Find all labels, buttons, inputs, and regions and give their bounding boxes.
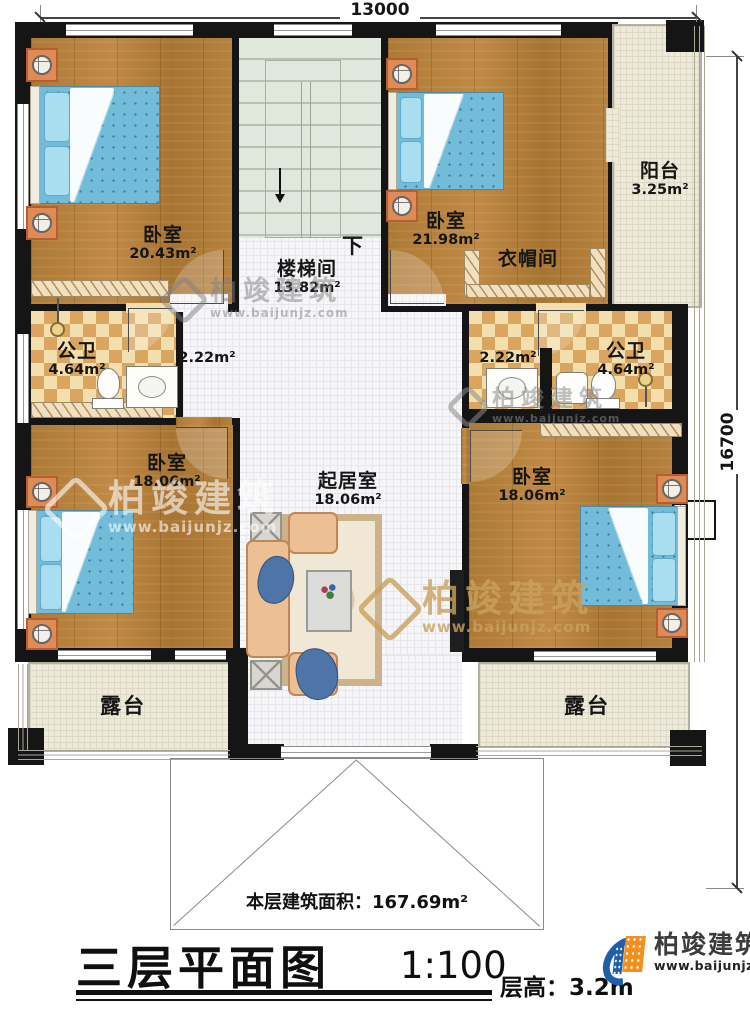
room-name: 卧室	[498, 466, 565, 488]
lamp-icon	[662, 613, 682, 633]
bath-divider-wall	[540, 348, 552, 416]
plan-title: 三层平面图	[76, 932, 331, 998]
bed-sheet	[424, 94, 464, 188]
room-area: 20.43m²	[129, 246, 196, 263]
door-gap-balcony	[606, 108, 620, 162]
room-name: 露台	[100, 694, 146, 719]
bed-sheet	[608, 508, 648, 604]
room-name: 楼梯间	[273, 258, 340, 280]
window	[175, 650, 226, 660]
window	[58, 650, 151, 660]
side-table	[250, 660, 282, 690]
nightstand	[26, 476, 58, 508]
bed-pillow	[40, 516, 62, 562]
room-area: 2.22m²	[178, 350, 235, 367]
logo-website: www.baijunjz.com	[654, 958, 750, 973]
door-gap	[176, 417, 232, 427]
down-arrow-icon	[275, 194, 285, 203]
dimension-top: 13000	[340, 0, 420, 20]
nightstand	[386, 58, 418, 90]
room-name: 卧室	[412, 210, 479, 232]
bed-sheet	[70, 88, 114, 202]
bed-headboard	[388, 92, 397, 190]
balcony-railing	[694, 26, 705, 662]
window	[274, 24, 352, 36]
nightstand	[656, 608, 688, 638]
room-label-bath-right: 公卫 4.64m²	[597, 340, 654, 380]
dimension-right: 16700	[718, 410, 738, 474]
plan-scale: 1:100	[400, 944, 507, 987]
window	[281, 746, 431, 758]
toilet-tank	[92, 398, 124, 409]
bed-pillow	[40, 564, 62, 610]
logo-text: 柏竣建筑 www.baijunjz.com	[654, 932, 750, 973]
nightstand	[656, 474, 688, 504]
room-label-bedroom-mr: 卧室 18.06m²	[498, 466, 565, 506]
company-logo: 柏竣建筑 www.baijunjz.com	[606, 926, 750, 1004]
bed-pillow	[44, 146, 70, 196]
sink-vanity	[486, 368, 538, 408]
bed-sheet	[62, 512, 100, 612]
title-underline-thick	[76, 990, 492, 995]
room-name: 衣帽间	[498, 248, 558, 270]
bed-pillow	[44, 92, 70, 142]
room-area: 21.98m²	[412, 232, 479, 249]
room-area: 18.06m²	[314, 492, 381, 509]
floor-area-label: 本层建筑面积：	[246, 892, 372, 913]
sink-vanity	[126, 366, 178, 408]
room-label-cloakroom: 衣帽间	[498, 248, 558, 270]
room-area: 18.06m²	[498, 488, 565, 505]
stairs-divider	[301, 82, 311, 238]
sink-icon	[498, 377, 526, 399]
room-area: 4.64m²	[48, 362, 105, 379]
nightstand	[26, 206, 58, 240]
room-label-balcony: 阳台 3.25m²	[631, 160, 688, 200]
lamp-icon	[32, 624, 52, 644]
ceiling-lamp-icon	[50, 322, 65, 337]
room-label-living: 起居室 18.06m²	[314, 470, 381, 510]
room-label-bedroom-ml: 卧室 18.06m²	[133, 452, 200, 492]
hall-right-area: 2.22m²	[479, 350, 536, 367]
cloakroom-wardrobe-b	[466, 284, 590, 298]
room-label-bedroom-tr: 卧室 21.98m²	[412, 210, 479, 250]
floor-plan: 卧室 20.43m² 楼梯间 13.82m² 下 卧室 21.98m² 衣帽间 …	[0, 0, 750, 1013]
bed-pillow	[652, 558, 676, 602]
floor-height-label: 层高：	[500, 975, 569, 1001]
tv	[450, 570, 464, 652]
flowers-icon	[318, 582, 340, 604]
lamp-icon	[32, 55, 52, 75]
lamp-icon	[32, 482, 52, 502]
window	[534, 651, 656, 661]
room-area: 18.06m²	[133, 474, 200, 491]
title-underline-thin	[76, 999, 492, 1001]
window	[66, 24, 193, 36]
room-name: 卧室	[129, 224, 196, 246]
cloakroom-wardrobe-c	[590, 248, 606, 298]
room-name: 露台	[564, 694, 610, 719]
floor-area-note: 本层建筑面积：167.69m²	[246, 888, 468, 914]
room-area: 3.25m²	[631, 182, 688, 199]
sink-icon	[138, 376, 166, 398]
logo-company-name: 柏竣建筑	[654, 932, 750, 958]
room-label-terrace-left: 露台	[100, 694, 146, 719]
lamp-cord	[57, 298, 59, 324]
floor-area-value: 167.69m²	[372, 892, 468, 913]
terrace-railing	[18, 664, 28, 750]
bed-headboard	[677, 506, 686, 606]
hall-left-area: 2.22m²	[178, 350, 235, 367]
lamp-icon	[32, 213, 52, 233]
logo-building-icon	[622, 936, 646, 972]
lamp-icon	[392, 64, 412, 84]
window	[17, 334, 29, 423]
bed-pillow	[400, 97, 422, 139]
bed-pillow	[652, 512, 676, 556]
lamp-cord	[645, 387, 647, 407]
room-area: 13.82m²	[273, 280, 340, 297]
room-name: 公卫	[48, 340, 105, 362]
room-name: 公卫	[597, 340, 654, 362]
wardrobe-top-left	[31, 280, 169, 297]
side-table	[250, 512, 282, 542]
room-name: 卧室	[133, 452, 200, 474]
bed-headboard	[30, 86, 40, 204]
room-label-stairwell: 楼梯间 13.82m²	[273, 258, 340, 298]
down-arrow-stem	[279, 168, 281, 194]
wardrobe-mid-right	[540, 423, 682, 437]
room-area: 2.22m²	[479, 350, 536, 367]
coffee-table	[306, 570, 352, 632]
room-name: 起居室	[314, 470, 381, 492]
room-label-terrace-right: 露台	[564, 694, 610, 719]
terrace-railing	[476, 746, 702, 756]
armchair	[288, 512, 338, 554]
lamp-icon	[662, 479, 682, 499]
shower-basin	[556, 372, 588, 404]
bed-pillow	[400, 141, 422, 183]
lamp-icon	[392, 196, 412, 216]
window	[436, 24, 561, 36]
room-name: 阳台	[631, 160, 688, 182]
bed-headboard	[28, 510, 37, 614]
toilet-tank	[586, 398, 620, 409]
stair-down-label: 下	[342, 230, 363, 260]
room-label-bedroom-tl: 卧室 20.43m²	[129, 224, 196, 264]
room-area: 4.64m²	[597, 362, 654, 379]
room-label-bath-left: 公卫 4.64m²	[48, 340, 105, 380]
dimension-ext	[696, 5, 697, 22]
nightstand	[26, 48, 58, 82]
nightstand	[26, 618, 58, 650]
